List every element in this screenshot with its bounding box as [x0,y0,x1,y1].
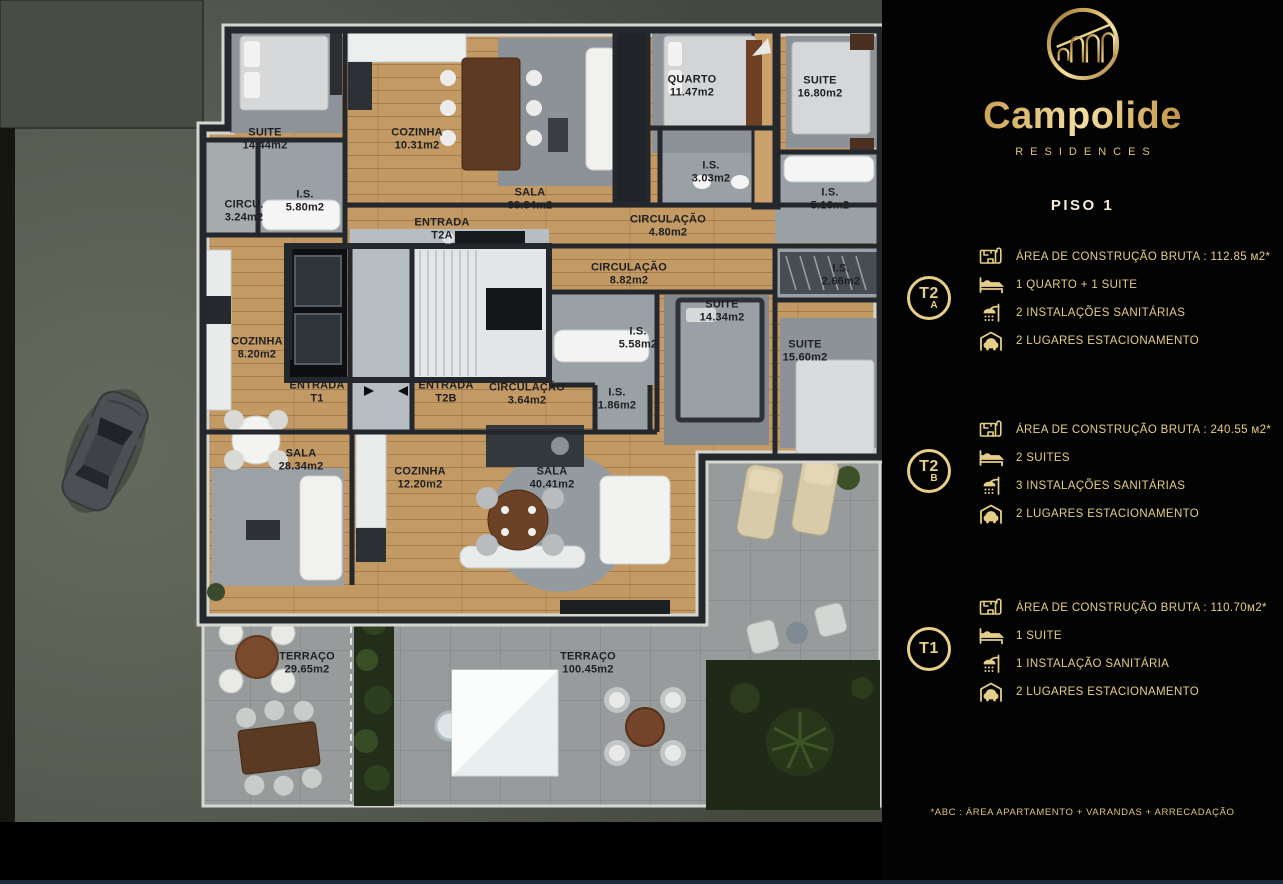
spec-text: 2 LUGARES ESTACIONAMENTO [1016,686,1199,698]
spec-text: 2 LUGARES ESTACIONAMENTO [1016,508,1199,520]
floorplan-icon [978,245,1004,269]
floorplan-graphic [0,0,882,884]
unit-code: T2 [919,287,939,301]
adjacent-roof [0,0,203,128]
brochure-page: { "panel": { "brand": {"name": "Campolid… [0,0,1283,884]
spec-text: 1 QUARTO + 1 SUITE [1016,279,1137,291]
unit-badge: T1 [907,627,951,671]
road-edge [0,128,15,822]
brand-tagline: RESIDENCES [882,146,1283,158]
unit-badge: T2A [907,276,951,320]
shower-icon [978,474,1004,498]
floor-title: PISO 1 [882,197,1283,214]
shower-icon [978,652,1004,676]
floorplan-icon [978,596,1004,620]
spec-text: 1 INSTALAÇÃO SANITÁRIA [1016,658,1169,670]
brand-name: Campolide [882,95,1283,138]
garage-icon [978,680,1004,704]
spec-text: ÁREA DE CONSTRUÇÃO BRUTA : 112.85 м2* [1016,251,1270,263]
spec-row: 2 LUGARES ESTACIONAMENTO [978,500,1283,528]
unit-section-t2b: T2BÁREA DE CONSTRUÇÃO BRUTA : 240.55 м2*… [882,416,1283,528]
planter-strip [351,602,394,806]
spec-row: 3 INSTALAÇÕES SANITÁRIAS [978,472,1283,500]
brand-block: Campolide RESIDENCES [882,5,1283,158]
unit-badge: T2B [907,449,951,493]
spec-row: ÁREA DE CONSTRUÇÃO BRUTA : 110.70м2* [978,594,1283,622]
spec-text: ÁREA DE CONSTRUÇÃO BRUTA : 110.70м2* [1016,602,1267,614]
spec-text: 2 SUITES [1016,452,1070,464]
spec-row: 1 QUARTO + 1 SUITE [978,271,1283,299]
unit-code: T1 [919,642,939,656]
unit-code: T2 [919,460,939,474]
unit-variant: A [930,301,937,310]
floorplan-icon [978,418,1004,442]
unit-section-t1: T1ÁREA DE CONSTRUÇÃO BRUTA : 110.70м2*1 … [882,594,1283,706]
shower-icon [978,301,1004,325]
bed-icon [978,624,1004,648]
spec-text: 2 INSTALAÇÕES SANITÁRIAS [1016,307,1185,319]
footnote: *ABC : ÁREA APARTAMENTO + VARANDAS + ARR… [882,807,1283,818]
spec-row: 1 SUITE [978,622,1283,650]
spec-row: 2 INSTALAÇÕES SANITÁRIAS [978,299,1283,327]
bed-icon [978,446,1004,470]
unit-variant: B [930,474,937,483]
info-panel: Campolide RESIDENCES PISO 1 T2AÁREA DE C… [882,0,1283,884]
spec-row: ÁREA DE CONSTRUÇÃO BRUTA : 240.55 м2* [978,416,1283,444]
bed-icon [978,273,1004,297]
spec-text: 2 LUGARES ESTACIONAMENTO [1016,335,1199,347]
garden [706,660,880,810]
garage-icon [978,502,1004,526]
spec-text: ÁREA DE CONSTRUÇÃO BRUTA : 240.55 м2* [1016,424,1271,436]
bottom-accent-line [0,880,1283,884]
spec-row: ÁREA DE CONSTRUÇÃO BRUTA : 112.85 м2* [978,243,1283,271]
spec-text: 3 INSTALAÇÕES SANITÁRIAS [1016,480,1185,492]
floorplan-area: SUITE14.44m2COZINHA10.31m2I.S.5.80m2CIRC… [0,0,882,884]
campolide-logo-icon [1044,5,1122,83]
garage-icon [978,329,1004,353]
unit-section-t2a: T2AÁREA DE CONSTRUÇÃO BRUTA : 112.85 м2*… [882,243,1283,355]
spec-row: 1 INSTALAÇÃO SANITÁRIA [978,650,1283,678]
spec-row: 2 SUITES [978,444,1283,472]
spec-text: 1 SUITE [1016,630,1062,642]
spec-row: 2 LUGARES ESTACIONAMENTO [978,327,1283,355]
spec-row: 2 LUGARES ESTACIONAMENTO [978,678,1283,706]
